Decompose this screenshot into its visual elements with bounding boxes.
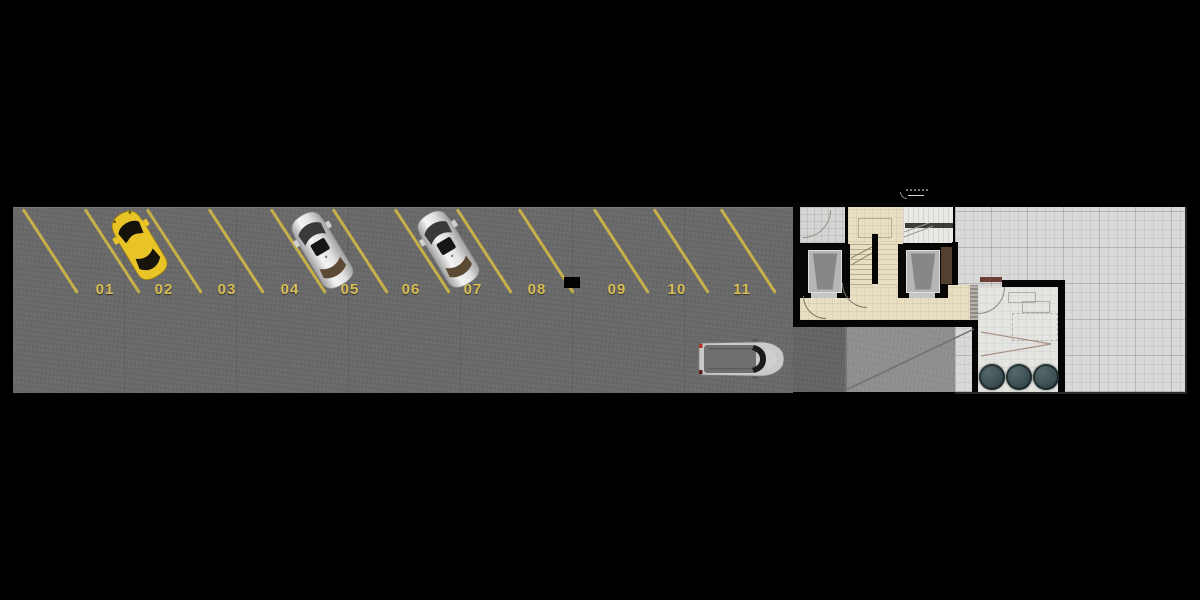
garage-floor-plan: 0102030405060708091011 (0, 0, 1200, 600)
driving-car (698, 339, 786, 379)
parked-car (408, 202, 487, 296)
parked-car (282, 203, 361, 297)
cars-layer (0, 0, 1200, 600)
parked-car (102, 202, 175, 288)
